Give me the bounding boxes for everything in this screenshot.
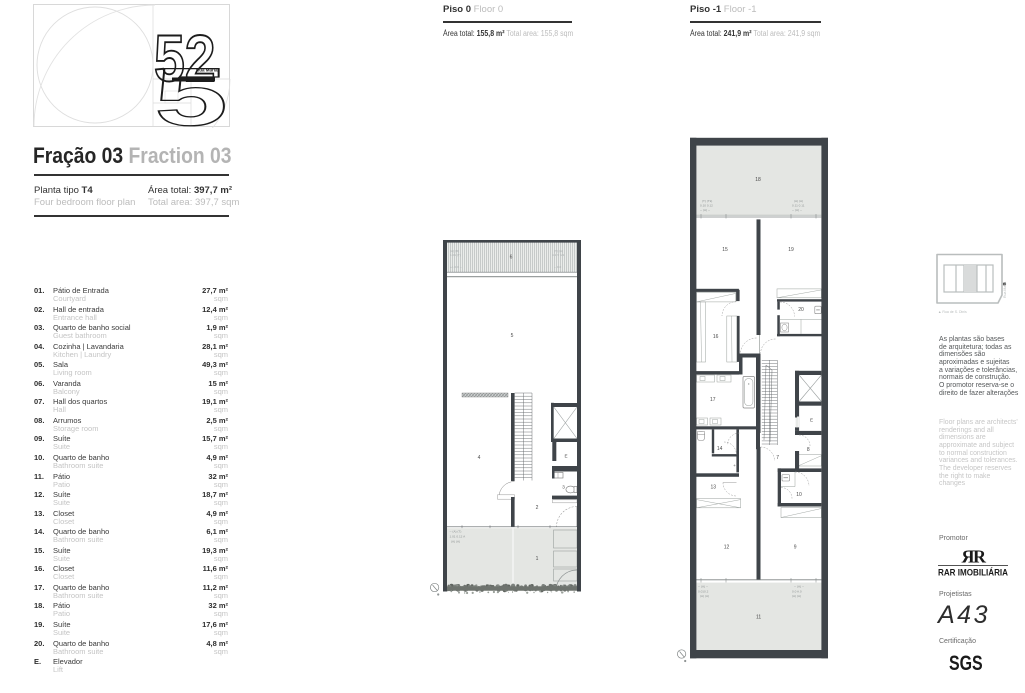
svg-text:9: 9 (794, 545, 797, 551)
svg-text:0.010.2: 0.010.2 (698, 589, 709, 593)
svg-text:11: 11 (756, 614, 761, 620)
svg-text:12: 12 (724, 545, 730, 551)
svg-text:-- (A) (T): -- (A) (T) (450, 530, 462, 534)
svg-text:(A) (A): (A) (A) (700, 594, 709, 598)
svg-text:-- (A) --: -- (A) -- (698, 585, 708, 589)
svg-text:5: 5 (511, 333, 514, 339)
svg-text:4.1 V 1/1: 4.1 V 1/1 (552, 253, 565, 257)
svg-text:18: 18 (755, 177, 761, 183)
svg-text:E: E (564, 454, 567, 459)
svg-text:8: 8 (807, 447, 810, 453)
svg-text:-- (A) --: -- (A) -- (792, 208, 802, 212)
svg-text:16: 16 (713, 334, 719, 340)
svg-text:0.10 0.12: 0.10 0.12 (700, 204, 713, 208)
svg-text:2: 2 (536, 505, 539, 511)
svg-text:-- 0.0: -- 0.0 (554, 265, 562, 269)
svg-text:20: 20 (798, 307, 804, 313)
svg-text:17: 17 (710, 397, 716, 403)
svg-text:10: 10 (796, 492, 802, 498)
svg-text:Rua Maria: Rua Maria (196, 68, 218, 73)
svg-text:6: 6 (510, 255, 513, 261)
svg-text:-- (A) --: -- (A) -- (700, 208, 710, 212)
svg-text:5: 5 (155, 52, 228, 128)
svg-text:-- (A) --: -- (A) -- (794, 585, 804, 589)
svg-text:+/- 0.0 --: +/- 0.0 -- (450, 265, 462, 269)
svg-text:13: 13 (711, 484, 717, 490)
svg-text:Rua Maria: Rua Maria (1003, 282, 1007, 298)
svg-text:(A) (A): (A) (A) (451, 539, 460, 543)
svg-text:(T) (Tk): (T) (Tk) (702, 199, 712, 203)
svg-text:3: 3 (562, 485, 565, 490)
svg-text:19: 19 (788, 247, 794, 253)
svg-text:(A) (A): (A) (A) (794, 199, 803, 203)
svg-text:ЯR: ЯR (962, 547, 987, 567)
svg-text:E: E (810, 418, 813, 423)
svg-text:15: 15 (722, 247, 728, 253)
svg-text:1.01 0.12 A: 1.01 0.12 A (450, 535, 467, 539)
svg-text:(A) (A): (A) (A) (792, 594, 801, 598)
svg-text:14: 14 (717, 446, 723, 452)
svg-text:1.01 (T): 1.01 (T) (450, 253, 461, 257)
svg-text:RAR IMOBILIÁRIA: RAR IMOBILIÁRIA (938, 567, 1008, 578)
svg-text:0.0 A.0: 0.0 A.0 (792, 589, 802, 593)
svg-text:4: 4 (478, 455, 481, 461)
svg-text:▲ Rua de S. Dinis: ▲ Rua de S. Dinis (938, 310, 967, 314)
svg-text:0.11 0.11: 0.11 0.11 (792, 204, 805, 208)
svg-text:7: 7 (776, 455, 779, 461)
svg-text:1: 1 (536, 556, 539, 562)
